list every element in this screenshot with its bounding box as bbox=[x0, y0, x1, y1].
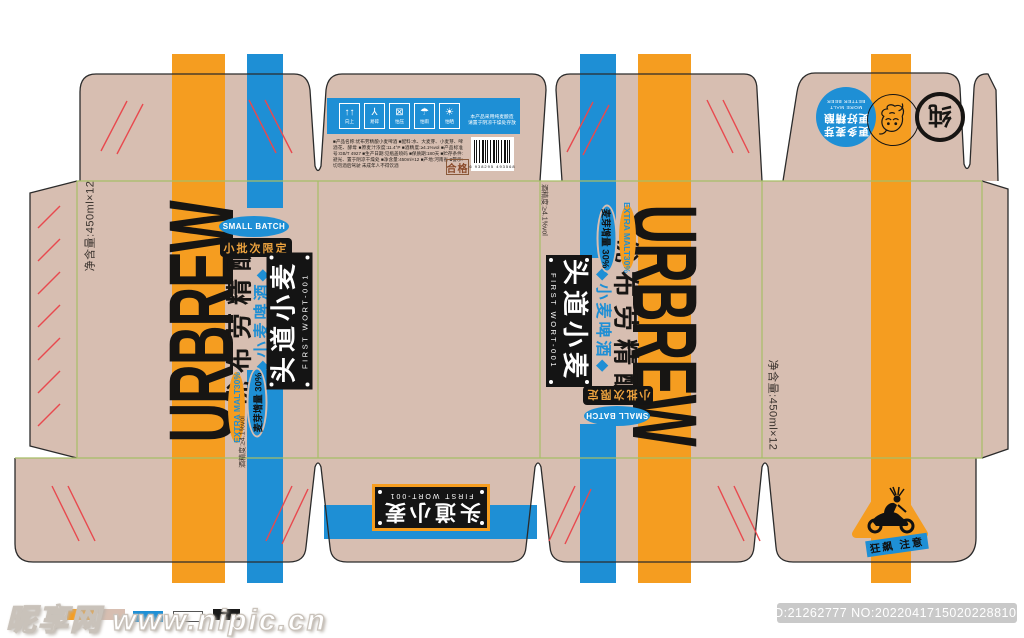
small-batch-oval-right: SMALL BATCH bbox=[584, 406, 650, 426]
product-label-right: 头道小麦 FIRST WORT-001 bbox=[546, 255, 592, 387]
corner-dot bbox=[378, 521, 382, 525]
corner-dot bbox=[480, 521, 484, 525]
alcohol-left: 酒精度:≥4.1%vol bbox=[238, 415, 248, 470]
extra-malt-oval-right: EXTRA MALT30% bbox=[619, 205, 636, 270]
qualified-stamp: 合格 bbox=[446, 159, 469, 175]
monkey-lineart-icon bbox=[869, 96, 917, 144]
product-label-bottom: 头道小麦 FIRST WORT-001 bbox=[372, 484, 490, 531]
band-notice: 本产品采用纯麦酿造请置于阴凉干燥处存放 bbox=[468, 110, 516, 132]
corner-dot bbox=[549, 258, 553, 262]
right-edge-strip bbox=[982, 181, 1008, 458]
wheat-beer-right: ◆小麦啤酒◆ bbox=[595, 269, 616, 374]
label-subtitle: FIRST WORT-001 bbox=[389, 492, 474, 499]
glue-flap-shape bbox=[30, 181, 77, 458]
product-info-text: ■产品名称:优布劳精酿小麦啤酒 ■配料:水、大麦芽、小麦芽、啤酒花、酵母 ■原麦… bbox=[333, 139, 463, 176]
corner-dot bbox=[549, 380, 553, 384]
label-subtitle: FIRST WORT-001 bbox=[300, 273, 309, 369]
barcode-bars bbox=[474, 140, 511, 163]
keep-away-sun-icon: ☀怕晒 bbox=[439, 103, 460, 129]
badge-en-line: MORE MALT bbox=[830, 103, 863, 109]
net-content-left: 净含量:450ml×12 bbox=[83, 184, 97, 269]
barcode: 6 938295 493568 bbox=[471, 137, 514, 171]
badge-cn-line: 更好精酿 bbox=[823, 112, 869, 124]
keep-dry-icon: ☂怕雨 bbox=[414, 103, 435, 129]
badge-en-line: BETTER BEER bbox=[827, 97, 866, 103]
seal-character: 纯 bbox=[928, 100, 952, 135]
stacking-limit-icon: ⊠怕压 bbox=[389, 103, 410, 129]
corner-dot bbox=[270, 383, 274, 387]
corner-dot bbox=[378, 490, 382, 494]
net-content-right: 净含量:450ml×12 bbox=[767, 363, 781, 448]
site-watermark: 昵享网 www.nipic.cn bbox=[6, 600, 327, 634]
corner-dot bbox=[585, 380, 589, 384]
label-title: 头道小麦 bbox=[270, 259, 299, 383]
corner-dot bbox=[306, 383, 310, 387]
keep-upright-icon: ↑↑向上 bbox=[339, 103, 360, 129]
fragile-icon: ⅄易碎 bbox=[364, 103, 385, 129]
label-subtitle: FIRST WORT-001 bbox=[549, 273, 558, 369]
label-title: 头道小麦 bbox=[560, 259, 589, 383]
badge-cn-line: 更多麦芽 bbox=[823, 124, 869, 136]
seal-badge: 纯 bbox=[915, 92, 965, 142]
malt-increase-oval-right: 麦芽增量 30% bbox=[597, 205, 618, 273]
label-title: 头道小麦 bbox=[381, 500, 481, 523]
barcode-digits: 6 938295 493568 bbox=[469, 164, 515, 169]
corner-dot bbox=[306, 256, 310, 260]
corner-dot bbox=[270, 256, 274, 260]
image-id-badge: ID:21262777 NO:20220417150202288107 bbox=[777, 603, 1017, 623]
packaging-dieline-canvas: 净含量:450ml×12 URBREW 优布劳精酿 ◆小麦啤酒◆ SMALL B… bbox=[0, 0, 1024, 638]
alcohol-right: 酒精度:≥4.1%vol bbox=[540, 183, 550, 238]
product-label-left: 头道小麦 FIRST WORT-001 bbox=[267, 253, 313, 390]
corner-dot bbox=[585, 258, 589, 262]
small-batch-oval-left: SMALL BATCH bbox=[219, 216, 289, 237]
malt-increase-oval-left: 麦芽增量 30% bbox=[247, 368, 268, 438]
mascot-illustration-badge bbox=[867, 94, 919, 146]
corner-dot bbox=[480, 490, 484, 494]
small-batch-box-right: 小批次限定 bbox=[583, 386, 653, 405]
